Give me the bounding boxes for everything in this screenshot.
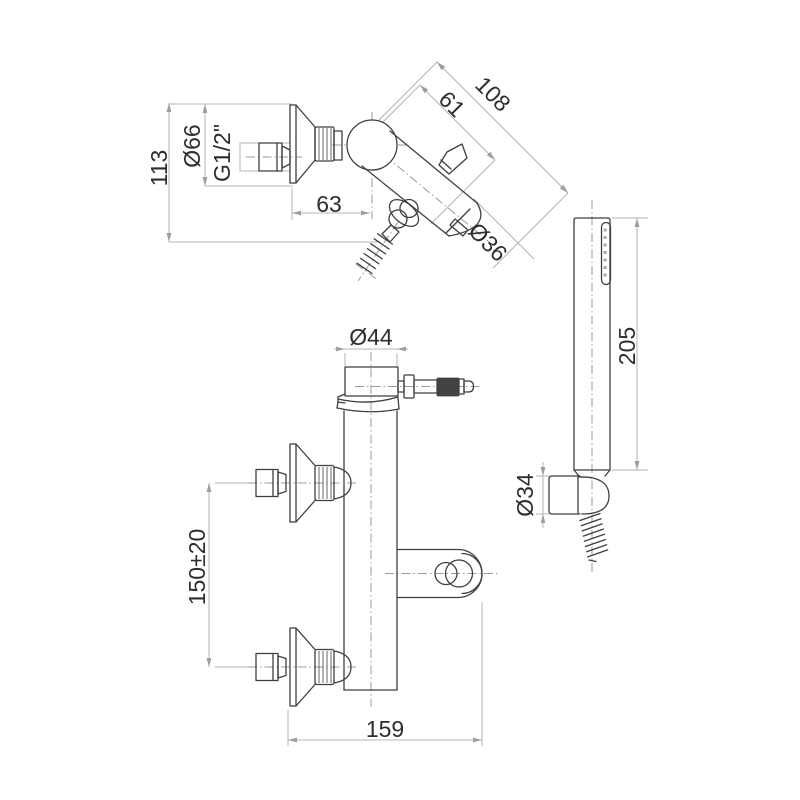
lever-knurled-grip — [437, 378, 459, 396]
hose-coil — [580, 514, 608, 562]
dim-label-66: Ø66 — [179, 124, 205, 167]
dim-label-44: Ø44 — [349, 324, 393, 350]
hand-shower-outline — [549, 218, 611, 562]
dim-label-36: Ø36 — [463, 217, 512, 266]
lever-knob — [439, 144, 467, 174]
flexible-hose-coil — [357, 234, 392, 274]
dim-label-61: 61 — [434, 86, 470, 122]
dim-label-63: 63 — [316, 191, 342, 217]
technical-drawing-page: 113 Ø66 G1/2" 63 61 108 Ø36 — [0, 0, 800, 800]
ball-joint — [347, 120, 397, 170]
dim-label-205: 205 — [614, 327, 640, 365]
front-view-mixer-outline — [248, 367, 482, 706]
dim-label-113: 113 — [146, 150, 172, 187]
hand-shower-view: 205 Ø34 — [512, 200, 648, 575]
body-tube-upper-edge — [390, 131, 477, 203]
escutcheon-flange — [290, 105, 296, 183]
dim-label-108: 108 — [470, 71, 516, 117]
wall-holder-block — [549, 476, 580, 514]
wall-union — [248, 444, 358, 522]
dim-label-thread: G1/2" — [209, 124, 235, 182]
holder-knuckle — [578, 477, 609, 514]
front-view-centerlines — [355, 352, 500, 707]
front-view: Ø44 150±20 159 — [184, 324, 500, 746]
dim-label-159: 159 — [366, 716, 404, 742]
dim-label-150: 150±20 — [184, 529, 210, 606]
wall-union-lower — [248, 628, 358, 706]
side-view: 113 Ø66 G1/2" 63 61 108 Ø36 — [146, 62, 568, 281]
spray-nozzle-dots — [604, 229, 607, 277]
dim-label-34: Ø34 — [512, 473, 538, 517]
shower-mixer-dimension-drawing: 113 Ø66 G1/2" 63 61 108 Ø36 — [0, 0, 800, 800]
